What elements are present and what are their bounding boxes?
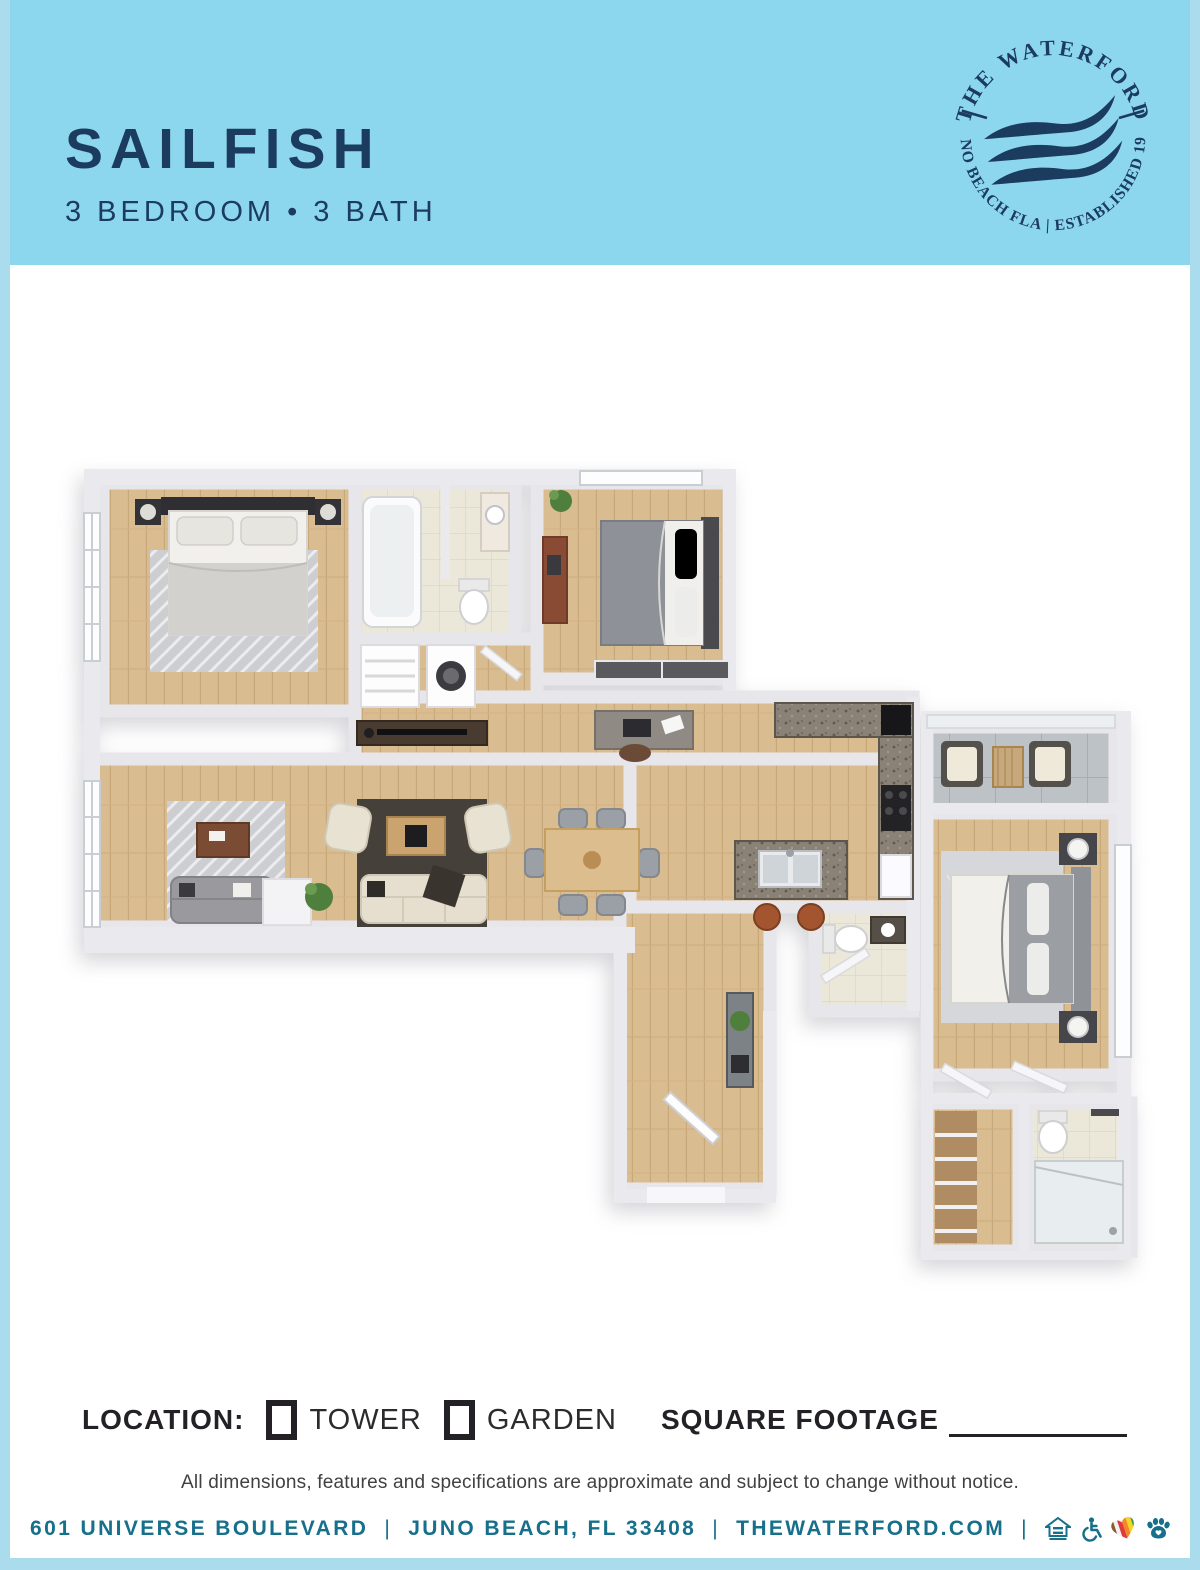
shower: [1035, 1161, 1123, 1243]
lamp: [1068, 1017, 1088, 1037]
waterford-logo: THE WATERFORD JUNO BEACH FLA | ESTABLISH…: [943, 30, 1163, 250]
equal-housing-icon: [1045, 1516, 1071, 1542]
desk-chair: [619, 744, 651, 762]
decor-box: [731, 1055, 749, 1073]
square-footage-label: SQUARE FOOTAGE: [661, 1404, 939, 1436]
tower-checkbox[interactable]: [266, 1400, 297, 1440]
paw-icon: [1144, 1516, 1170, 1542]
tower-label: TOWER: [309, 1404, 421, 1437]
flyer-page: SAILFISH 3 BEDROOM • 3 BATH THE WATERFOR…: [0, 0, 1200, 1570]
stool: [754, 904, 780, 930]
patio-chair: [941, 741, 983, 787]
speaker: [364, 728, 374, 738]
vanity-sink: [481, 493, 509, 551]
footer-bar: 601 UNIVERSE BOULEVARD | JUNO BEACH, FL …: [10, 1516, 1190, 1542]
closet-shelving: [935, 1111, 977, 1243]
drain: [1109, 1227, 1117, 1235]
oven: [881, 785, 911, 831]
toilet: [823, 925, 867, 953]
footer-separator: |: [384, 1517, 392, 1541]
bed: [951, 867, 1091, 1011]
location-label: LOCATION:: [82, 1404, 244, 1436]
bed: [161, 497, 315, 635]
desk: [543, 537, 567, 623]
footer-separator: |: [1021, 1517, 1029, 1541]
footer-icons: [1045, 1516, 1170, 1542]
centerpiece: [583, 851, 601, 869]
waves-icon: [981, 95, 1127, 191]
sofa: [171, 877, 273, 923]
accessibility-icon: [1078, 1516, 1104, 1542]
books: [209, 831, 225, 841]
toilet: [1039, 1111, 1067, 1153]
walk-in-closet: [935, 1111, 977, 1243]
tv: [377, 729, 467, 735]
media-console: [357, 721, 487, 745]
pillow: [675, 587, 697, 637]
footer-address: 601 UNIVERSE BOULEVARD: [30, 1517, 368, 1541]
location-row: LOCATION: TOWER GARDEN SQUARE FOOTAGE: [82, 1396, 1127, 1444]
plant: [730, 1011, 750, 1031]
lamp: [140, 504, 156, 520]
window: [84, 513, 100, 661]
duvet: [169, 563, 307, 635]
accent-chair: [463, 802, 512, 855]
pride-heart-icon: [1111, 1516, 1137, 1542]
island: [735, 841, 847, 899]
accent-chair: [323, 802, 372, 855]
desk-items: [547, 555, 561, 575]
pillow: [1027, 943, 1049, 995]
refrigerator: [881, 855, 911, 897]
half-wall: [263, 879, 311, 925]
pillow: [675, 529, 697, 579]
header-band: SAILFISH 3 BEDROOM • 3 BATH THE WATERFOR…: [10, 0, 1190, 265]
logo-top-text: THE WATERFORD: [950, 35, 1156, 126]
balcony-rail: [927, 715, 1115, 728]
pillow: [177, 517, 233, 545]
footer-separator: |: [712, 1517, 720, 1541]
garden-label: GARDEN: [487, 1404, 617, 1437]
garden-checkbox[interactable]: [444, 1400, 475, 1440]
page-title: SAILFISH: [65, 116, 437, 182]
tray: [405, 825, 427, 847]
bathtub-basin: [370, 505, 414, 617]
mirror: [1091, 1109, 1119, 1116]
footer-city: JUNO BEACH, FL 33408: [408, 1517, 696, 1541]
cooktop: [881, 705, 911, 735]
faucet: [786, 849, 794, 857]
footer-website-link[interactable]: THEWATERFORD.COM: [736, 1517, 1005, 1541]
stool: [798, 904, 824, 930]
title-block: SAILFISH 3 BEDROOM • 3 BATH: [65, 116, 437, 229]
disclaimer-text: All dimensions, features and specificati…: [10, 1472, 1190, 1494]
lamp: [320, 504, 336, 520]
logo-separator-ticks: [962, 111, 1144, 118]
pillow: [1027, 883, 1049, 935]
floor-plan-rendering: [75, 455, 1140, 1260]
pillow: [179, 883, 195, 897]
pillow: [367, 881, 385, 897]
lamp: [1068, 839, 1088, 859]
square-footage-line[interactable]: [949, 1407, 1127, 1437]
window: [1115, 845, 1131, 1057]
page-subtitle: 3 BEDROOM • 3 BATH: [65, 196, 437, 229]
pillow: [241, 517, 297, 545]
toilet: [459, 579, 489, 624]
patio-chair: [1029, 741, 1071, 787]
monitor: [623, 719, 651, 737]
pillow: [233, 883, 251, 897]
door-threshold: [647, 1187, 725, 1203]
window: [84, 781, 100, 927]
svg-text:THE WATERFORD: THE WATERFORD: [950, 35, 1156, 126]
bed: [601, 517, 719, 649]
window: [580, 471, 702, 485]
